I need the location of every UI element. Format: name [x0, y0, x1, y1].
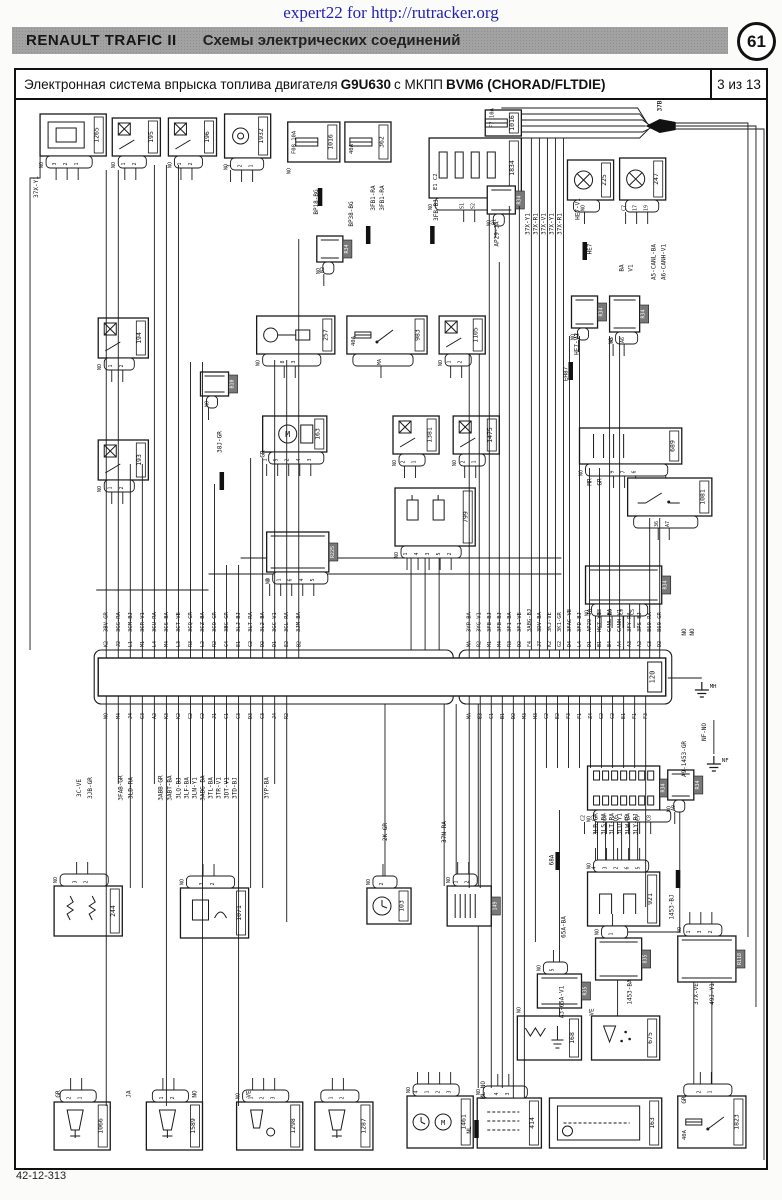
- svg-text:2: 2: [210, 882, 216, 885]
- svg-text:3: 3: [307, 458, 313, 461]
- svg-text:Z4: Z4: [588, 713, 594, 719]
- svg-text:3TR-V1: 3TR-V1: [216, 777, 223, 799]
- svg-text:3LY-BJ: 3LY-BJ: [633, 813, 640, 835]
- svg-text:2: 2: [132, 162, 138, 165]
- component-1105: 110512NO: [438, 316, 485, 378]
- svg-text:R34: R34: [599, 307, 605, 316]
- component-R34: R34A5A6NO: [609, 296, 649, 356]
- svg-text:3: 3: [697, 930, 703, 933]
- svg-text:MR: MR: [587, 478, 594, 486]
- svg-text:38J-GR: 38J-GR: [217, 431, 224, 453]
- component-R225: R22531645NO: [266, 532, 338, 596]
- svg-text:3FAC-VE: 3FAC-VE: [567, 609, 573, 632]
- svg-text:5: 5: [636, 866, 642, 869]
- svg-text:1071: 1071: [235, 905, 243, 921]
- svg-text:NO: NO: [689, 628, 696, 636]
- component-R34: R34A9NO: [667, 770, 703, 824]
- svg-text:3PS-BJ: 3PS-BJ: [637, 612, 643, 632]
- svg-text:NF: NF: [722, 758, 729, 764]
- svg-text:MH: MH: [710, 684, 717, 690]
- svg-text:37B: 37B: [657, 100, 664, 111]
- diagram-frame: Электронная система впрыска топлива двиг…: [14, 68, 768, 1170]
- component-193: 19312NO: [97, 440, 148, 504]
- svg-text:A6: A6: [620, 337, 626, 343]
- svg-text:3: 3: [199, 882, 205, 885]
- svg-text:2: 2: [401, 460, 407, 463]
- component-R34: R34B1NO: [486, 186, 524, 238]
- footer-code: 42-12-313: [16, 1170, 66, 1182]
- component-R118: R118132NO: [677, 912, 745, 982]
- svg-text:A2: A2: [637, 641, 643, 647]
- svg-text:4: 4: [299, 578, 305, 581]
- svg-text:6: 6: [625, 866, 631, 869]
- svg-text:M3: M3: [522, 713, 528, 719]
- svg-text:3: 3: [73, 880, 79, 883]
- svg-text:L3: L3: [176, 641, 182, 647]
- watermark-link[interactable]: expert22 for http://rutracker.org: [0, 3, 782, 23]
- svg-text:NO: NO: [39, 162, 45, 168]
- component-675: 675: [592, 1016, 660, 1060]
- svg-text:2: 2: [260, 1096, 266, 1099]
- svg-text:NO: NO: [224, 164, 230, 170]
- svg-text:3GG-RA: 3GG-RA: [116, 611, 122, 632]
- component-1298: 1298123NO: [236, 1078, 303, 1150]
- svg-text:1016: 1016: [326, 134, 334, 150]
- svg-text:G2: G2: [557, 641, 563, 647]
- component-1016: 1016NOF08 10A: [287, 122, 340, 174]
- svg-text:K2: K2: [547, 641, 553, 647]
- svg-text:163: 163: [648, 1117, 656, 1129]
- svg-text:3CU-RA: 3CU-RA: [152, 611, 158, 632]
- svg-text:3: 3: [505, 1092, 511, 1095]
- svg-text:3CT-VE: 3CT-VE: [176, 612, 182, 632]
- diagram-title-row: Электронная система впрыска топлива двиг…: [16, 70, 766, 100]
- svg-text:3TL-BA: 3TL-BA: [208, 777, 215, 799]
- svg-text:3JM-BA: 3JM-BA: [296, 611, 302, 632]
- svg-text:19: 19: [644, 205, 650, 211]
- svg-text:3CO-GR: 3CO-GR: [212, 611, 218, 632]
- svg-text:3LQ-BJ: 3LQ-BJ: [175, 777, 182, 799]
- svg-text:3F1-VE: 3F1-VE: [517, 612, 523, 632]
- svg-text:A5-CANL-BA: A5-CANL-BA: [651, 244, 658, 280]
- svg-text:1: 1: [472, 460, 478, 463]
- svg-text:H3: H3: [533, 713, 539, 719]
- svg-text:G2: G2: [188, 713, 194, 719]
- svg-text:F3: F3: [566, 713, 572, 719]
- svg-text:6: 6: [288, 578, 294, 581]
- svg-text:3LU-Y1: 3LU-Y1: [617, 813, 624, 835]
- svg-text:3CZ-BA: 3CZ-BA: [200, 611, 206, 632]
- svg-text:2: 2: [339, 1096, 345, 1099]
- svg-text:3GC-V1: 3GC-V1: [272, 612, 278, 632]
- svg-text:JA: JA: [125, 1090, 132, 1098]
- svg-text:2: 2: [119, 364, 125, 367]
- svg-text:3TD-BJ: 3TD-BJ: [232, 777, 239, 799]
- svg-text:G3: G3: [140, 713, 146, 719]
- svg-text:L1: L1: [128, 641, 134, 647]
- svg-text:168: 168: [568, 1032, 576, 1044]
- bundle-label: 37B: [657, 100, 664, 111]
- component-163: 163M15243: [263, 416, 327, 476]
- svg-text:195: 195: [147, 131, 155, 143]
- svg-text:NO: NO: [681, 628, 688, 636]
- svg-text:C2: C2: [200, 713, 206, 719]
- svg-text:3KJ-VE: 3KJ-VE: [547, 612, 553, 632]
- svg-text:1: 1: [403, 552, 409, 555]
- svg-text:3CS-BA: 3CS-BA: [164, 611, 170, 632]
- svg-text:R34: R34: [663, 580, 669, 589]
- svg-text:HE7: HE7: [587, 243, 594, 254]
- svg-text:1: 1: [108, 486, 114, 489]
- svg-text:C7: C7: [622, 205, 628, 211]
- title-engine-code: G9U630: [341, 77, 391, 92]
- svg-text:J4: J4: [128, 713, 134, 719]
- svg-text:R3: R3: [507, 641, 513, 647]
- component-362: 36240A: [345, 122, 391, 162]
- component-247: 247C71719: [620, 158, 666, 224]
- sheet-number: 3 из 13: [710, 70, 766, 98]
- svg-text:68A: 68A: [548, 854, 555, 865]
- svg-text:E1: E1: [621, 713, 627, 719]
- svg-text:A6-CANH-V1: A6-CANH-V1: [661, 244, 668, 280]
- svg-text:1: 1: [454, 880, 460, 883]
- svg-text:37X-V1: 37X-V1: [540, 213, 547, 235]
- svg-text:3FB1-RA: 3FB1-RA: [379, 185, 386, 211]
- svg-text:NF-NO: NF-NO: [701, 723, 708, 741]
- svg-text:1453-BA: 1453-BA: [627, 979, 634, 1005]
- svg-text:2: 2: [436, 1090, 442, 1093]
- svg-text:D1: D1: [272, 641, 278, 647]
- svg-text:NO: NO: [394, 552, 400, 558]
- svg-text:E1: E1: [236, 641, 242, 647]
- svg-text:F7 10A: F7 10A: [489, 107, 495, 128]
- svg-text:CANL-BA: CANL-BA: [607, 608, 613, 632]
- svg-text:225: 225: [600, 174, 608, 186]
- component-163: 163: [549, 1098, 661, 1148]
- component-921: 92143265NO: [587, 848, 660, 926]
- svg-text:1287: 1287: [359, 1118, 367, 1134]
- svg-text:CANH-V1: CANH-V1: [617, 609, 623, 632]
- svg-text:NO: NO: [97, 486, 103, 492]
- component-1066: 106621: [54, 1078, 110, 1150]
- component-1287: 128712: [315, 1078, 373, 1150]
- svg-text:1823: 1823: [732, 1114, 740, 1130]
- svg-text:MA: MA: [467, 641, 473, 647]
- svg-text:3: 3: [603, 866, 609, 869]
- diagram-title: Электронная система впрыска топлива двиг…: [16, 70, 710, 98]
- svg-text:D1: D1: [587, 641, 593, 647]
- component-149: 14912NO: [446, 862, 500, 926]
- svg-text:3: 3: [291, 360, 297, 363]
- svg-text:A7: A7: [665, 521, 671, 527]
- svg-text:3LR-GR: 3LR-GR: [593, 813, 600, 835]
- svg-text:NO: NO: [366, 879, 372, 885]
- svg-text:37X-Y1: 37X-Y1: [33, 176, 40, 198]
- svg-text:2: 2: [461, 460, 467, 463]
- svg-text:B4: B4: [607, 641, 613, 647]
- svg-text:R225: R225: [330, 546, 336, 558]
- svg-text:AP29-JA: AP29-JA: [493, 221, 500, 247]
- svg-text:1453-BJ: 1453-BJ: [669, 894, 676, 919]
- svg-text:1298: 1298: [289, 1118, 297, 1134]
- svg-text:NO: NO: [536, 965, 542, 971]
- svg-text:1: 1: [159, 1096, 165, 1099]
- component-R34: R34B2NO: [316, 236, 352, 286]
- svg-text:J2: J2: [116, 641, 122, 647]
- svg-text:E2: E2: [284, 641, 290, 647]
- svg-text:A3: A3: [627, 641, 633, 647]
- svg-text:F3: F3: [643, 713, 649, 719]
- svg-text:C8: C8: [647, 815, 653, 821]
- svg-text:C1: C1: [224, 713, 230, 719]
- svg-text:40A: 40A: [682, 1129, 688, 1140]
- component-196: 19612NO: [167, 118, 216, 180]
- svg-text:C3: C3: [647, 641, 653, 647]
- svg-text:J1: J1: [212, 713, 218, 719]
- svg-text:S2: S2: [471, 203, 477, 209]
- svg-text:F08 10A: F08 10A: [292, 130, 298, 154]
- svg-text:MA: MA: [377, 359, 383, 365]
- svg-text:4: 4: [414, 552, 420, 555]
- svg-text:GR: GR: [681, 1096, 688, 1104]
- svg-text:NO: NO: [256, 360, 262, 366]
- svg-text:M1: M1: [140, 641, 146, 647]
- svg-text:3FB-BJ: 3FB-BJ: [497, 612, 503, 632]
- svg-text:3LT-RA: 3LT-RA: [248, 611, 254, 632]
- svg-text:MA: MA: [467, 713, 473, 719]
- svg-text:R34: R34: [516, 195, 522, 204]
- svg-text:247: 247: [652, 173, 660, 185]
- svg-text:1: 1: [108, 364, 114, 367]
- svg-text:244: 244: [109, 905, 117, 917]
- svg-text:1834: 1834: [508, 160, 516, 176]
- page-number-circle: 61: [737, 22, 776, 61]
- svg-text:1: 1: [121, 162, 127, 165]
- svg-text:2: 2: [696, 1090, 702, 1093]
- svg-text:3LN-Y1: 3LN-Y1: [191, 777, 198, 799]
- svg-text:K2: K2: [176, 713, 182, 719]
- svg-text:3FY-RA: 3FY-RA: [627, 611, 633, 632]
- svg-text:NO: NO: [677, 927, 683, 933]
- svg-text:1: 1: [328, 1096, 334, 1099]
- svg-text:1: 1: [249, 164, 255, 167]
- svg-text:194: 194: [135, 332, 143, 344]
- svg-text:NO: NO: [53, 877, 59, 883]
- svg-text:HE7-V1: HE7-V1: [573, 333, 580, 355]
- svg-text:NO: NO: [97, 364, 103, 370]
- svg-text:1381: 1381: [426, 427, 434, 443]
- svg-text:5: 5: [549, 968, 555, 971]
- svg-text:414: 414: [528, 1117, 536, 1129]
- svg-text:3YP-BA: 3YP-BA: [467, 611, 473, 632]
- svg-text:2: 2: [119, 486, 125, 489]
- svg-text:3F1-BA: 3F1-BA: [507, 611, 513, 632]
- svg-text:E2: E2: [555, 713, 561, 719]
- svg-text:R34: R34: [661, 783, 667, 792]
- svg-text:1016: 1016: [508, 115, 516, 131]
- svg-text:3ABG-BJ: 3ABG-BJ: [527, 609, 533, 632]
- svg-text:NO: NO: [191, 1090, 198, 1098]
- svg-text:37X-R1: 37X-R1: [532, 213, 539, 235]
- svg-text:NO: NO: [111, 162, 117, 168]
- svg-text:869-RA: 869-RA: [647, 611, 653, 632]
- component-1381: 138121NO: [392, 416, 439, 478]
- component-1016: 1016F7 10A: [485, 107, 521, 136]
- component-103: 1032NO: [366, 864, 411, 924]
- component-1589: 158912: [146, 1078, 202, 1150]
- svg-text:EH87: EH87: [562, 366, 569, 381]
- svg-text:1081: 1081: [698, 489, 706, 505]
- svg-text:1: 1: [707, 1090, 713, 1093]
- svg-text:3YG-V1: 3YG-V1: [477, 612, 483, 632]
- svg-text:M4: M4: [497, 641, 503, 647]
- svg-text:257: 257: [321, 329, 329, 341]
- header-brand: RENAULT TRAFIC II: [26, 32, 177, 49]
- svg-text:B2: B2: [296, 641, 302, 647]
- svg-text:2K-GR: 2K-GR: [382, 823, 389, 841]
- title-prefix: Электронная система впрыска топлива двиг…: [24, 77, 338, 92]
- svg-text:103: 103: [398, 900, 406, 912]
- svg-text:5: 5: [310, 578, 316, 581]
- svg-text:8: 8: [280, 360, 286, 363]
- svg-text:2: 2: [84, 880, 90, 883]
- svg-text:1: 1: [74, 162, 80, 165]
- svg-text:ML-NO: ML-NO: [480, 1081, 487, 1099]
- svg-text:17: 17: [633, 205, 639, 211]
- title-gearbox-code: BVM6 (CHORAD/FLTDIE): [446, 77, 606, 92]
- svg-text:D2: D2: [260, 641, 266, 647]
- svg-text:689: 689: [668, 440, 676, 452]
- svg-text:3FB-BJ: 3FB-BJ: [487, 612, 493, 632]
- svg-text:NL: NL: [466, 1126, 473, 1134]
- svg-text:NO: NO: [316, 268, 322, 274]
- svg-text:NO: NO: [266, 578, 272, 584]
- svg-text:3C-VE: 3C-VE: [76, 779, 83, 797]
- svg-text:B1: B1: [500, 713, 506, 719]
- svg-text:2: 2: [188, 162, 194, 165]
- svg-text:2: 2: [458, 360, 464, 363]
- svg-text:3CQ-GR: 3CQ-GR: [188, 611, 194, 632]
- wiring-diagram: 1265321NO19512NO19612NO1932321NO1016NOF0…: [16, 100, 766, 1166]
- svg-text:B10: B10: [230, 379, 236, 388]
- svg-text:3LS-BA: 3LS-BA: [601, 813, 608, 835]
- svg-text:3FAB-GR: 3FAB-GR: [117, 775, 124, 801]
- header-title: Схемы электрических соединений: [203, 32, 461, 49]
- component-1265: 1265321NO: [39, 114, 106, 180]
- component-168: 168NO: [516, 1007, 581, 1060]
- svg-text:3FB1-RA: 3FB1-RA: [370, 185, 377, 211]
- svg-text:3LF-BA: 3LF-BA: [183, 777, 190, 799]
- svg-text:2: 2: [67, 1096, 73, 1099]
- svg-text:3CL-RA: 3CL-RA: [284, 611, 290, 632]
- svg-text:VE: VE: [246, 1090, 253, 1098]
- svg-text:1: 1: [425, 1090, 431, 1093]
- svg-text:C1: C1: [489, 713, 495, 719]
- svg-text:NO: NO: [179, 879, 185, 885]
- svg-text:983: 983: [414, 329, 422, 341]
- svg-text:C3: C3: [236, 713, 242, 719]
- svg-text:3L2-BA: 3L2-BA: [260, 611, 266, 632]
- title-middle: с МКПП: [394, 77, 443, 92]
- svg-text:1475: 1475: [486, 427, 494, 443]
- svg-text:193: 193: [135, 454, 143, 466]
- svg-text:2: 2: [465, 880, 471, 883]
- svg-text:R34: R34: [641, 309, 647, 318]
- svg-text:R2: R2: [212, 641, 218, 647]
- svg-text:VE: VE: [589, 1008, 596, 1016]
- svg-text:GR: GR: [597, 478, 604, 486]
- svg-text:J7: J7: [537, 641, 543, 647]
- svg-text:R2: R2: [477, 641, 483, 647]
- svg-text:2: 2: [708, 930, 714, 933]
- svg-text:1: 1: [609, 932, 615, 935]
- svg-text:163: 163: [313, 428, 321, 440]
- svg-text:NO: NO: [446, 877, 452, 883]
- svg-text:4: 4: [414, 1090, 420, 1093]
- svg-text:3ABT-BA: 3ABT-BA: [166, 775, 173, 801]
- svg-text:37X-VE: 37X-VE: [693, 983, 700, 1005]
- svg-text:1: 1: [177, 162, 183, 165]
- svg-text:V1: V1: [628, 264, 635, 272]
- svg-text:3LW-BA: 3LW-BA: [625, 813, 632, 835]
- svg-text:3CM-BJ: 3CM-BJ: [128, 612, 134, 632]
- svg-text:M4: M4: [164, 641, 170, 647]
- svg-text:1105: 1105: [472, 327, 480, 343]
- svg-text:NO: NO: [667, 806, 673, 812]
- svg-text:40A: 40A: [349, 143, 355, 154]
- svg-text:3: 3: [447, 1090, 453, 1093]
- svg-text:NO: NO: [406, 1087, 412, 1093]
- component-1081: 108136A7: [628, 478, 712, 540]
- svg-text:3BG-GR: 3BG-GR: [224, 611, 230, 632]
- svg-text:4: 4: [494, 1092, 500, 1095]
- svg-text:E1 C2: E1 C2: [433, 173, 439, 190]
- svg-text:M: M: [441, 1119, 445, 1127]
- svg-text:D2: D2: [657, 641, 663, 647]
- svg-text:362: 362: [377, 136, 385, 148]
- svg-text:835: 835: [643, 954, 649, 963]
- svg-text:NO: NO: [587, 863, 593, 869]
- svg-text:2: 2: [170, 1096, 176, 1099]
- svg-text:3K1-GR: 3K1-GR: [557, 611, 563, 632]
- svg-text:C2: C2: [544, 713, 550, 719]
- component-1475: 147521NO: [452, 416, 499, 478]
- svg-text:1: 1: [263, 458, 269, 461]
- svg-text:M4: M4: [116, 713, 122, 719]
- svg-text:869-GR: 869-GR: [657, 611, 663, 632]
- component-B10: B10NO: [200, 372, 237, 420]
- component-244: 24432NO: [53, 862, 122, 936]
- svg-text:D2: D2: [517, 641, 523, 647]
- svg-text:1: 1: [412, 460, 418, 463]
- svg-text:NO: NO: [438, 360, 444, 366]
- generated-diagram-layer: 1265321NO19512NO19612NO1932321NO1016NOF0…: [33, 100, 746, 1150]
- svg-text:HK7-Y1: HK7-Y1: [597, 612, 603, 632]
- svg-text:R3: R3: [188, 641, 194, 647]
- svg-text:3ABG-BA: 3ABG-BA: [199, 775, 206, 801]
- svg-text:D2: D2: [511, 713, 517, 719]
- svg-text:K2: K2: [104, 641, 110, 647]
- svg-text:BP38-BG: BP38-BG: [348, 201, 355, 227]
- svg-text:3: 3: [271, 1096, 277, 1099]
- svg-text:1: 1: [686, 930, 692, 933]
- svg-text:2: 2: [447, 552, 453, 555]
- scanned-manual-page: expert22 for http://rutracker.org RENAUL…: [0, 0, 782, 1200]
- svg-text:149: 149: [492, 901, 498, 910]
- svg-text:49J-Y1: 49J-Y1: [709, 983, 716, 1005]
- svg-text:GR: GR: [260, 450, 267, 458]
- svg-text:3DT-V1: 3DT-V1: [224, 777, 231, 799]
